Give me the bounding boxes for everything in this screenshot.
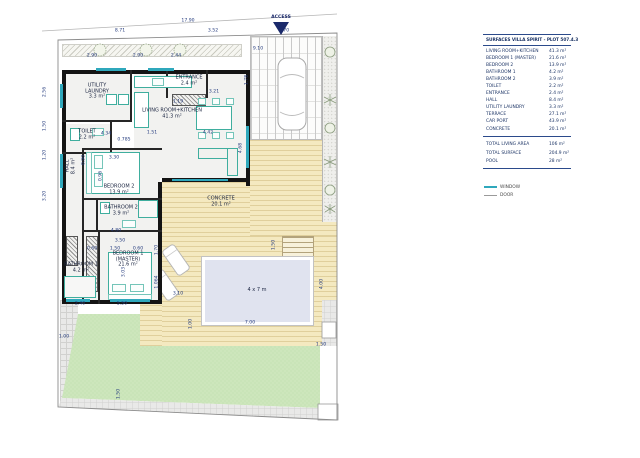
window-segment — [60, 154, 63, 188]
surfaces-table-rows: LIVING ROOM+KITCHEN41.3 m²BEDROOM 1 (MAS… — [483, 46, 571, 135]
row-value: 3.3 m² — [549, 105, 571, 110]
row-value: 20.1 m² — [549, 127, 571, 132]
table-row: BEDROOM 213.9 m² — [486, 63, 571, 68]
table-row: ENTRANCE2.4 m² — [486, 91, 571, 96]
dimension-label: 0.785 — [117, 139, 130, 144]
dimension-label: 9.10 — [253, 48, 263, 53]
dimension-label: 1.064 — [156, 275, 161, 288]
door-swatch-icon — [484, 195, 497, 196]
row-label: TOTAL SURFACE — [486, 151, 544, 156]
furniture — [227, 148, 238, 176]
legend-window-label: WINDOW — [500, 185, 520, 190]
dimension-label: 1.50 — [44, 121, 49, 131]
table-row: CAR PORT43.9 m² — [486, 119, 571, 124]
room-label-bedroom-2: BEDROOM 2 13.9 m² — [104, 184, 135, 195]
dimension-label: 4.80 — [111, 230, 121, 235]
row-label: CAR PORT — [486, 119, 544, 124]
row-label: POOL — [486, 159, 544, 164]
interior-wall — [62, 120, 132, 122]
furniture — [112, 284, 126, 292]
dimension-label: 8.71 — [115, 30, 125, 35]
dimension-label: 1.51 — [147, 132, 157, 137]
furniture — [226, 132, 234, 139]
dimension-label: 1.50 — [316, 344, 326, 349]
dimension-label: 3.21 — [209, 91, 219, 96]
room-label-bedroom-1-master: BEDROOM 1 (MASTER) 21.6 m² — [113, 252, 144, 269]
furniture — [198, 98, 206, 105]
table-row: LIVING ROOM+KITCHEN41.3 m² — [486, 49, 571, 54]
gravel-planting-strip — [322, 36, 337, 222]
row-label: BATHROOM 1 — [486, 70, 544, 75]
table-row: UTILITY LAUNDRY3.3 m² — [486, 105, 571, 110]
row-value: 2.2 m² — [549, 84, 571, 89]
room-label-utility-laundry: UTILITY LAUNDRY 3.3 m² — [85, 84, 109, 101]
table-row: TOTAL LIVING AREA106 m² — [486, 142, 571, 147]
dimension-label: 2.44 — [171, 55, 181, 60]
room-label-hall: HALL 8.4 m² — [65, 158, 76, 174]
legend-door-row: DOOR — [484, 191, 520, 199]
row-value: 204.9 m² — [549, 151, 571, 156]
dimension-label: 1.78 — [246, 75, 251, 85]
row-label: BEDROOM 1 (MASTER) — [486, 56, 544, 61]
dimension-label: 4.68 — [240, 143, 245, 153]
dimension-label: 1.00 — [59, 336, 69, 341]
table-row: HALL8.4 m² — [486, 98, 571, 103]
table-divider — [483, 168, 571, 169]
legend: WINDOW DOOR — [484, 183, 520, 199]
table-row: POOL28 m² — [486, 159, 571, 164]
dimension-label: 3.03 — [123, 267, 128, 277]
furniture — [152, 78, 164, 86]
dimension-label: 1.00 — [190, 319, 195, 329]
window-segment — [172, 179, 228, 181]
row-label: BEDROOM 2 — [486, 63, 544, 68]
surfaces-table: SURFACES VILLA SPIRIT - PLOT 507.4.3 LIV… — [483, 34, 571, 169]
dimension-label: 2.40 — [75, 303, 85, 308]
utility-box — [318, 404, 338, 420]
furniture — [122, 220, 136, 228]
table-row: BATHROOM 23.9 m² — [486, 77, 571, 82]
furniture — [130, 284, 144, 292]
paver-path-bottom — [58, 398, 337, 420]
terrace-south-strip — [140, 300, 162, 346]
room-label-entrance: ENTRANCE 2.4 m² — [175, 75, 202, 86]
table-row: BATHROOM 14.2 m² — [486, 70, 571, 75]
furniture — [212, 98, 220, 105]
dimension-label: 2.56 — [44, 87, 49, 97]
row-label: ENTRANCE — [486, 91, 544, 96]
window-segment — [60, 84, 63, 108]
room-label-toilet: TOILET 2.2 m² — [78, 129, 95, 140]
row-value: 43.9 m² — [549, 119, 571, 124]
row-value: 27.1 m² — [549, 112, 571, 117]
dimension-label: 1.50 — [110, 248, 120, 253]
row-value: 106 m² — [549, 142, 571, 147]
furniture — [226, 98, 234, 105]
furniture — [212, 132, 220, 139]
room-label-concrete: CONCRETE 20.1 m² — [207, 196, 235, 207]
surfaces-table-totals: TOTAL LIVING AREA106 m²TOTAL SURFACE204.… — [483, 140, 571, 169]
table-row: BEDROOM 1 (MASTER)21.6 m² — [486, 56, 571, 61]
window-segment — [246, 126, 249, 168]
dimension-label: 1.19 — [173, 101, 183, 106]
legend-window-row: WINDOW — [484, 183, 520, 191]
dimension-label: 1.50 — [118, 389, 123, 399]
dimension-label: 0.96 — [100, 171, 105, 181]
row-label: TOILET — [486, 84, 544, 89]
interior-wall — [96, 200, 98, 230]
dimension-label: 3.52 — [208, 30, 218, 35]
dimension-label: 0.60 — [87, 248, 97, 253]
dimension-label: 4.34 — [101, 133, 111, 138]
dimension-label: 3.20 — [44, 191, 49, 201]
row-label: HALL — [486, 98, 544, 103]
access-arrow-icon — [273, 22, 289, 35]
floor-plan-page: { "access": { "label": "ACCESS", "color"… — [0, 0, 640, 458]
row-label: TERRACE — [486, 112, 544, 117]
legend-door-label: DOOR — [500, 193, 513, 198]
table-row: TERRACE27.1 m² — [486, 112, 571, 117]
row-value: 41.3 m² — [549, 49, 571, 54]
row-value: 4.2 m² — [549, 70, 571, 75]
dimension-label: 4.42 — [203, 132, 213, 137]
room-label-pool-size: 4 x 7 m — [248, 288, 267, 294]
interior-wall — [130, 70, 132, 122]
row-value: 13.9 m² — [549, 63, 571, 68]
interior-wall — [206, 70, 208, 98]
furniture — [64, 276, 96, 298]
interior-wall — [82, 230, 162, 232]
dimension-label: 1.50 — [273, 240, 278, 250]
row-value: 21.6 m² — [549, 56, 571, 61]
table-row: TOTAL SURFACE204.9 m² — [486, 151, 571, 156]
row-value: 3.9 m² — [549, 77, 571, 82]
row-label: BATHROOM 2 — [486, 77, 544, 82]
row-label: TOTAL LIVING AREA — [486, 142, 544, 147]
dimension-label: 7.00 — [245, 322, 255, 327]
row-value: 8.4 m² — [549, 98, 571, 103]
room-label-living-room-kitchen: LIVING ROOM+KITCHEN 41.3 m² — [142, 108, 202, 119]
row-label: CONCRETE — [486, 127, 544, 132]
row-value: 2.4 m² — [549, 91, 571, 96]
room-label-bathroom-2: BATHROOM 2 3.9 m² — [104, 205, 138, 216]
interior-wall — [98, 230, 100, 304]
dimension-label: 0.90 — [83, 155, 88, 165]
table-row: CONCRETE20.1 m² — [486, 127, 571, 132]
furniture — [138, 200, 158, 218]
table-row: TOILET2.2 m² — [486, 84, 571, 89]
window-segment — [148, 68, 174, 71]
window-segment — [96, 68, 126, 71]
dimension-label: 17.90 — [181, 20, 194, 25]
dimension-label: 3.10 — [173, 293, 183, 298]
furniture — [118, 94, 129, 105]
room-label-bathroom-1: BATHROOM 1 4.2 m² — [64, 262, 98, 273]
dimension-label: 1.20 — [44, 150, 49, 160]
dimension-label: 0.60 — [133, 248, 143, 253]
row-value: 28 m² — [549, 159, 571, 164]
dimension-label: 5.50 — [117, 303, 127, 308]
row-label: UTILITY LAUNDRY — [486, 105, 544, 110]
dimension-label: 3.50 — [115, 240, 125, 245]
dimension-label: 3.30 — [109, 157, 119, 162]
row-label: LIVING ROOM+KITCHEN — [486, 49, 544, 54]
access-label: ACCESS — [271, 15, 291, 20]
dimension-label: 1.70 — [156, 245, 161, 255]
window-swatch-icon — [484, 186, 497, 188]
surfaces-table-title: SURFACES VILLA SPIRIT - PLOT 507.4.3 — [483, 34, 571, 46]
pool-steps — [282, 236, 314, 260]
interior-wall — [82, 148, 162, 150]
concrete-patio — [162, 182, 250, 236]
paver-path-left — [60, 300, 78, 402]
table-divider — [483, 136, 571, 137]
dimension-label: 2.90 — [87, 55, 97, 60]
dimension-label: 4.00 — [321, 279, 326, 289]
dimension-label: 2.90 — [133, 55, 143, 60]
furniture — [94, 155, 103, 169]
